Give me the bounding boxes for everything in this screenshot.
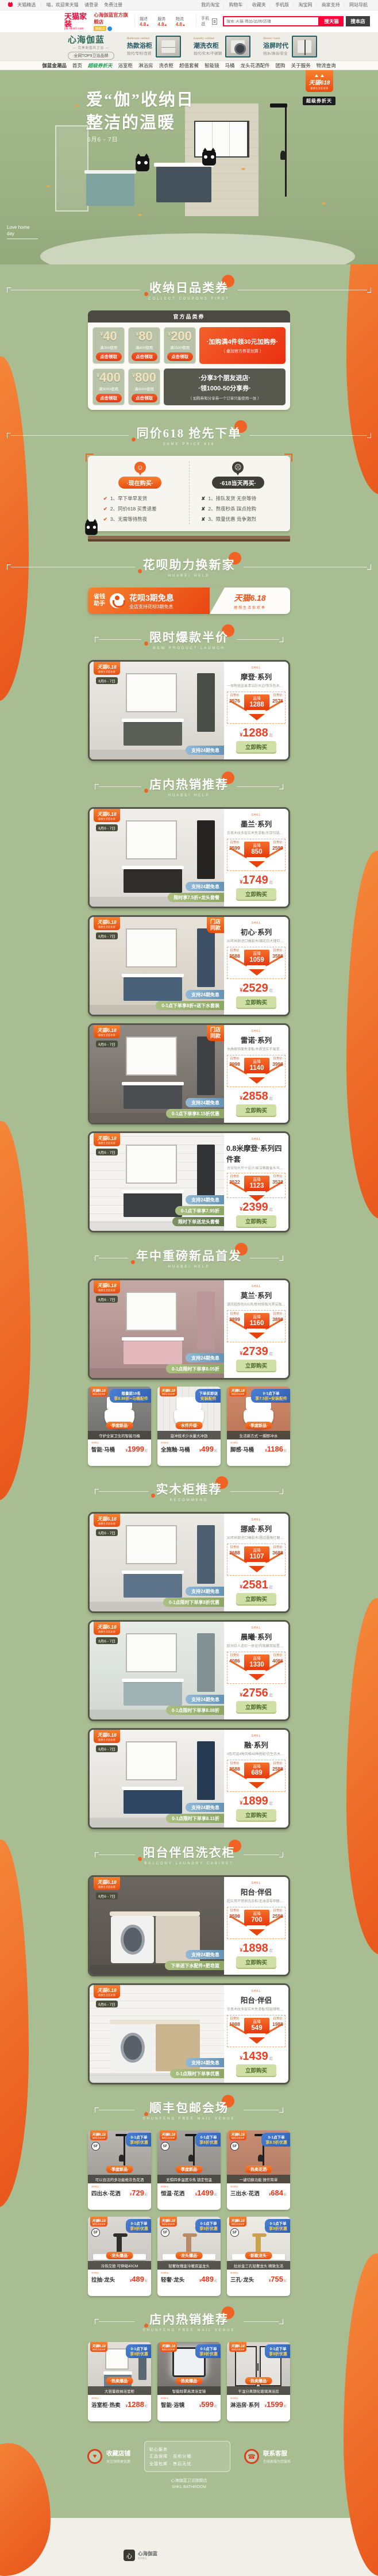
- image-badges: 支持24期免息0-1点下单享8.15折优惠: [166, 1098, 224, 1118]
- brand-mark: SHKL: [251, 1285, 261, 1288]
- product-image: 天猫6.18理想生活狂欢季 6月6 - 7日 支持24期免息0-1点限时下单享8…: [90, 1280, 224, 1378]
- promo-badge: 0-1点限时下单享优惠: [170, 2069, 224, 2078]
- promo-badge: 0-1点限时下单享8.08折: [166, 1706, 224, 1715]
- nav-item[interactable]: 智能镜: [205, 62, 219, 69]
- check-icon: ✔: [103, 506, 107, 512]
- product-image: 天猫6.18理想生活狂欢季 6月6 - 7日 门店同款 支持24期免息0-1点下…: [90, 1025, 224, 1123]
- product-desc: 仿真木纹多层实木免漆板/东亚铰链大容量拖层: [227, 830, 286, 835]
- discount-graphic: 日常价4086 直降1330 日常价4086: [227, 1652, 286, 1684]
- small-product-card[interactable]: 天猫6.18理想生活狂欢季 0-1点下单享7.5折+安装配件 ·季度新品· 生活…: [227, 1387, 290, 1466]
- product-tag: ·热卖爆品·: [245, 2377, 272, 2385]
- nav-item[interactable]: 超值套餐: [179, 62, 199, 69]
- section-header-huabei: 花呗助力换新家huabei help: [0, 554, 378, 579]
- product-image: 天猫6.18理想生活狂欢季 6月6 - 7日 支持24期免息0-1点限时下单享8…: [90, 1622, 224, 1719]
- login-link[interactable]: 请登录: [84, 2, 98, 7]
- coupon-80: ¥80 满600使用 点击领取: [128, 327, 160, 364]
- coupon-400: ¥400 满3000使用 点击领取: [92, 368, 125, 405]
- nav-item-home[interactable]: 首页: [72, 62, 82, 69]
- image-badges: 支持24期免息0-1点限时下单享优惠: [170, 2058, 224, 2078]
- product-name: 淋浴房·系列: [230, 2401, 260, 2409]
- product-price: ¥1288起: [240, 727, 273, 739]
- promo-618-badge: 天猫6.18理想生活狂欢季 6月6 - 7日: [94, 1133, 120, 1157]
- product-desc: 超实用不锈钢洗衣柜/无油漆零甲醛更健康: [227, 1898, 286, 1903]
- product-image: 天猫6.18理想生活狂欢季 0-1点下单享9折优惠 ·热卖爆品· 大容量收纳浴室…: [88, 2342, 151, 2395]
- coupon-panel: ¥40 满300使用 点击领取 ¥80 满600使用 点击领取 ¥200 满15…: [88, 323, 290, 410]
- store-banner: 心海伽蓝 — 完美新国风卫浴 — ·全网TOP9卫浴品牌· Bathroom c…: [0, 32, 378, 61]
- section-subtitle: same price 618: [137, 443, 242, 446]
- section-subtitle: shunfeng free mail venue: [142, 2329, 235, 2332]
- smiley-icon: ☺: [134, 462, 146, 473]
- claim-coupon-button[interactable]: 点击领取: [167, 352, 193, 361]
- buy-now-button[interactable]: 立即购买: [236, 1701, 276, 1713]
- wooden-shelf: [88, 536, 290, 542]
- product-tag: ·水件升级·: [176, 1422, 203, 1429]
- claim-coupon-button[interactable]: 点击领取: [132, 352, 157, 361]
- coupon-800: ¥800 满6000使用 点击领取: [128, 368, 160, 405]
- section-title: 实木柜推荐: [156, 1480, 222, 1498]
- promo-badge: 0-1点限时下单享8折优惠: [163, 1598, 224, 1607]
- category-promo-cabinet[interactable]: Bathroom cabinet热款浴柜现代/专利/百搭: [127, 36, 181, 57]
- promo-badge: 下单送下水配件+肥皂篮: [165, 1961, 224, 1970]
- hero-title-line2: 整洁的温暖: [86, 109, 175, 133]
- product-price: ¥1999起: [126, 1445, 148, 1453]
- product-image: 天猫6.18理想生活狂欢季 6月6 - 7日 支持24期免息限时享7.5折+龙头…: [90, 809, 224, 907]
- tmall-618-logo: 天猫6.18理想生活狂欢季: [210, 588, 290, 614]
- tmall-home-logo[interactable]: 天猫家装jia.tmall.com: [64, 13, 88, 30]
- store-nav: 伽蓝金潮品 首页 超级券折天 浴室柜 淋浴房 洗衣柜 超值套餐 智能镜 马桶 龙…: [0, 61, 378, 70]
- promo-618-badge: 天猫6.18理想生活狂欢季: [90, 2342, 107, 2352]
- product-price: ¥2739起: [240, 1346, 273, 1357]
- favorites-link[interactable]: 收藏夹: [252, 2, 266, 7]
- brand-mark: SHKL: [91, 2397, 148, 2400]
- nav-item[interactable]: 物流查询: [317, 62, 336, 69]
- product-name: 轻奢·龙头: [161, 2275, 184, 2283]
- product-price: ¥2858起: [240, 1091, 273, 1102]
- small-product-row: 天猫6.18理想生活狂欢季 SF 0-1点下单享9折优惠 ·龙头爆品· 冷热交替…: [88, 2217, 290, 2296]
- coupon-200: ¥200 满1500使用 点击领取: [164, 327, 196, 364]
- product-card[interactable]: 天猫6.18理想生活狂欢季 6月6 - 7日 支持24期免息下单送下水配件+肥皂…: [88, 1875, 290, 1976]
- discount-ribbon: 下单买即送安装配件: [195, 1389, 221, 1403]
- section-title: 店内热销推荐: [149, 2310, 229, 2328]
- product-info: SHKL 阳台·伴侣 仿真木纹多层实木免漆板/双层储物空间超省心 日常价1988…: [224, 1985, 288, 2083]
- product-name: 三孔·龙头: [230, 2275, 254, 2283]
- brand-mark: SHKL: [91, 2185, 148, 2188]
- nav-item-super-coupon[interactable]: 超级券折天: [88, 62, 113, 69]
- promo-618-badge: 天猫6.18理想生活狂欢季: [90, 2217, 107, 2226]
- buy-now-button[interactable]: 立即购买: [236, 741, 276, 753]
- section-title: 阳台伴侣洗衣柜: [143, 1844, 236, 1861]
- promo-618-badge: 天猫6.18理想生活狂欢季 6月6 - 7日: [94, 1025, 120, 1049]
- link-my-taobao[interactable]: 我的淘宝: [201, 2, 219, 7]
- product-desc-bar: 生活新方式 一脚即冲水: [227, 1431, 290, 1439]
- discount-graphic: 日常价3688 直降1107 日常价3688: [227, 1544, 286, 1576]
- product-card[interactable]: 天猫6.18理想生活狂欢季 6月6 - 7日 支持24期免息0-1点限时下单享8…: [88, 1620, 290, 1721]
- product-info: SHKL 莫兰·系列 潮流脏粉色INS风/新材质极光黑岩板台面 日常价3899 …: [224, 1280, 288, 1378]
- product-image: 天猫6.18理想生活狂欢季 6月6 - 7日 支持24期免息下单送下水配件+肥皂…: [90, 1877, 224, 1975]
- huabei-icon: [110, 593, 125, 608]
- category-promo-laundry[interactable]: Laundry cabinet潮洗衣柜现代/实木/不锈钢: [194, 36, 250, 57]
- small-product-card[interactable]: 天猫6.18理想生活狂欢季 SF 0-1点下单享8.5折优惠 ·热卖花洒· 一键…: [227, 2130, 290, 2210]
- installment-badge: 支持24期免息: [186, 1353, 224, 1362]
- promo-618-badge: 天猫6.18理想生活狂欢季 6月6 - 7日: [94, 662, 120, 685]
- small-product-card[interactable]: 天猫6.18理想生活狂欢季 0-1点下单享9折优惠 ·热卖爆品· 大容量收纳浴室…: [88, 2342, 151, 2421]
- buy-now-button[interactable]: 立即购买: [236, 1360, 276, 1371]
- discount-ribbon: 0-1点下单享7.5折+安装配件: [251, 1389, 290, 1403]
- taobao-link[interactable]: 淘宝网: [298, 2, 312, 7]
- product-price: ¥1899起: [240, 1795, 273, 1807]
- discount-graphic: 日常价3998 直降1140 日常价3998: [227, 1055, 286, 1087]
- buy-now-button[interactable]: 立即购买: [236, 2064, 276, 2076]
- product-card[interactable]: 天猫6.18理想生活狂欢季 6月6 - 7日 支持24期免息0-1点限时下单享8…: [88, 1728, 290, 1829]
- product-price: ¥489起: [130, 2275, 148, 2283]
- cart-link[interactable]: 购物车: [229, 2, 242, 7]
- promo-618-badge: 天猫6.18理想生活狂欢季 6月6 - 7日: [94, 1730, 120, 1753]
- product-series: 摩登·系列: [241, 671, 272, 682]
- nav-item[interactable]: 关于服务: [291, 62, 311, 69]
- product-name: 智能·马桶: [91, 1445, 115, 1453]
- promo-badge: 0-1点限时下单享8.05折: [166, 1364, 224, 1373]
- section-header: 限时爆款半价new product launch: [88, 627, 290, 652]
- product-info: SHKL 智能·浴镜 ¥599起: [157, 2395, 221, 2409]
- store-footer-logo: 心 心海伽蓝SHKL: [124, 2550, 157, 2561]
- hero-banner[interactable]: 爱“伽”收纳日 整洁的温暖 6月6 - 7日 Love homeday 天猫61…: [0, 70, 378, 264]
- product-tag: ·龙头爆品·: [176, 2252, 203, 2259]
- product-image: 天猫6.18理想生活狂欢季 SF 0-1点下单享9折优惠 ·龙头爆品· 冷热交替…: [88, 2217, 151, 2270]
- section-title: 顺丰包邮会场: [149, 2099, 229, 2116]
- product-image: 天猫6.18理想生活狂欢季 6月6 - 7日 支持24期免息0-1点限时下单享8…: [90, 1730, 224, 1828]
- product-series: 晨曦·系列: [241, 1631, 272, 1642]
- store-logo[interactable]: 心海伽蓝 — 完美新国风卫浴 — ·全网TOP9卫浴品牌·: [68, 33, 114, 60]
- arrow-down-icon: [249, 1674, 265, 1680]
- discount-graphic: 日常价3588 直降1059 日常价3588: [227, 947, 286, 979]
- section-header: 年中重磅新品首发huabei help: [88, 1245, 290, 1270]
- product-desc-bar: 守护全家卫生的智能马桶: [88, 1431, 151, 1439]
- product-series: 阳台·伴侣: [241, 1994, 272, 2005]
- installment-badge: 支持24期免息: [186, 2058, 224, 2067]
- promo-618-badge: 天猫6.18理想生活狂欢季: [160, 2130, 177, 2140]
- image-badges: 支持24期免息0-1点下单享7.95折限时下单送龙头套餐: [172, 1195, 224, 1226]
- buy-now-button[interactable]: 立即购买: [236, 1104, 276, 1116]
- hero-hand-shower: [280, 151, 286, 160]
- promo-618-badge: 天猫6.18理想生活狂欢季 6月6 - 7日: [94, 917, 120, 940]
- product-info: SHKL 初心·系列 30年树龄进口橡胶木/烟花白大理石台面 日常价3588 直…: [224, 917, 288, 1015]
- small-product-row: 天猫6.18理想生活狂欢季 限量前10名享8.88折+马桶配件 ·季度新品· 守…: [88, 1387, 290, 1466]
- nav-item[interactable]: 伽蓝金潮品: [42, 62, 67, 69]
- product-desc-bar: 无惧四季温度冷热 锁定恒温: [157, 2175, 221, 2183]
- image-badges: 支持24期免息0-1点限时下单享8折优惠: [163, 1587, 224, 1607]
- image-badges: 支持24期免息限时享7.5折+龙头套餐: [168, 882, 224, 902]
- buy-now-button[interactable]: 立即购买: [236, 1809, 276, 1821]
- discount-graphic: 日常价1988 直降549 日常价1988: [227, 2015, 286, 2047]
- sf-express-icon: SF: [230, 2228, 239, 2237]
- product-desc: 仿真木纹多层实木免漆板/双层储物空间超省心: [227, 2006, 286, 2011]
- section-header: 阳台伴侣洗衣柜balcony laundry cabinet: [88, 1842, 290, 1867]
- brand-mark: SHKL: [161, 2271, 217, 2274]
- product-card[interactable]: 天猫6.18理想生活狂欢季 6月6 - 7日 支持24期免息 SHKL 摩登·系…: [88, 660, 290, 761]
- small-product-card[interactable]: 天猫6.18理想生活狂欢季 SF 0-1点下单享9折优惠 ·龙头爆品· 轻奢玫瑰…: [157, 2217, 221, 2296]
- promo-618-badge: 天猫6.18理想生活狂欢季 6月6 - 7日: [94, 1622, 120, 1645]
- product-price: ¥684起: [269, 2189, 287, 2197]
- product-info: SHKL 四出水·花洒 ¥729起: [88, 2183, 151, 2197]
- register-link[interactable]: 免费注册: [104, 2, 122, 7]
- search-tmall-button[interactable]: 搜天猫: [319, 16, 344, 26]
- discount-ribbon: 0-1点下单享9折优惠: [265, 2219, 290, 2233]
- arrow-down-icon: [249, 1929, 265, 1936]
- product-card[interactable]: 天猫6.18理想生活狂欢季 6月6 - 7日 门店同款 支持24期免息0-1点下…: [88, 1023, 290, 1124]
- product-desc-bar: 轻奢玫瑰金冷暖双温龙头: [157, 2261, 221, 2270]
- image-badges: 支持24期免息0-1点限时下单享8.05折: [166, 1353, 224, 1373]
- brand-mark: SHKL: [230, 2185, 287, 2188]
- product-name: 全施釉·马桶: [161, 1445, 190, 1453]
- discount-graphic: 日常价2598 直降700 日常价2598: [227, 1907, 286, 1939]
- promo-618-badge: 天猫6.18理想生活狂欢季: [160, 2217, 177, 2226]
- section-title: 收纳日品类券: [149, 279, 229, 296]
- claim-coupon-button[interactable]: 点击领取: [96, 352, 122, 361]
- product-price: ¥2756起: [240, 1687, 273, 1699]
- section-header: 实木柜推荐recommend: [88, 1479, 290, 1504]
- product-tag: ·季度新品·: [245, 1422, 272, 1429]
- installment-badge: 支持24期免息: [186, 1098, 224, 1107]
- image-badges: 支持24期免息下单送下水配件+肥皂篮: [165, 1950, 224, 1970]
- small-product-card[interactable]: 天猫6.18理想生活狂欢季 下单买即送安装配件 ·水件升级· 漩冲技术少水量大冲…: [157, 1387, 221, 1466]
- product-info: SHKL 轻奢·龙头 ¥489起: [157, 2270, 221, 2283]
- brand-mark: SHKL: [251, 1518, 261, 1522]
- sf-express-icon: SF: [91, 2228, 100, 2237]
- sf-express-icon: SF: [161, 2142, 169, 2151]
- wangwang-icon[interactable]: [107, 26, 112, 31]
- hero-shower-head: [270, 103, 287, 108]
- product-info: SHKL 浴室柜·热卖 ¥1288起: [88, 2395, 151, 2409]
- installment-badge: 支持24期免息: [186, 990, 224, 999]
- cross-icon: ✘: [201, 496, 205, 502]
- buy-now-button[interactable]: 立即购买: [236, 1215, 276, 1227]
- product-name: 拉抽·龙头: [91, 2275, 115, 2283]
- add-on-coupon-promo[interactable]: ·加购满4件领30元加购券· （ 叠加官方券更划算 ）: [199, 327, 286, 364]
- arrow-down-icon: [249, 1077, 265, 1084]
- promo-618-badge: 天猫6.18理想生活狂欢季: [229, 2217, 246, 2226]
- nav-item[interactable]: 浴室柜: [118, 62, 133, 69]
- small-product-card[interactable]: 天猫6.18理想生活狂欢季 SF 0-1点下单享8折优惠 ·季度新品· 无惧四季…: [157, 2130, 221, 2210]
- promo-618-badge: 天猫6.18理想生活狂欢季: [90, 1387, 107, 1396]
- product-info: SHKL 全施釉·马桶 ¥499起: [157, 1439, 221, 1453]
- small-product-card[interactable]: 天猫6.18理想生活狂欢季 限量前10名享8.88折+马桶配件 ·季度新品· 守…: [88, 1387, 151, 1466]
- mobile-visit[interactable]: 手机逛: [196, 16, 217, 27]
- product-card[interactable]: 天猫6.18理想生活狂欢季 6月6 - 7日 门店同款 支持24期免息0-1点下…: [88, 915, 290, 1016]
- sf-express-icon: SF: [91, 2142, 100, 2151]
- product-info: SHKL 三孔·龙头 ¥755起: [227, 2270, 290, 2283]
- product-price: ¥2399起: [240, 1201, 273, 1213]
- buy-now-pill: ·现在购买·: [118, 477, 161, 489]
- promo-618-badge: 天猫6.18理想生活狂欢季 6月6 - 7日: [94, 1877, 120, 1901]
- product-desc-bar: 拉丝金三孔轻奢龙头 精致生活: [227, 2261, 290, 2270]
- product-tag: ·季度新品·: [176, 2166, 203, 2173]
- promo-618-badge: 天猫6.18理想生活狂欢季: [90, 2130, 107, 2140]
- brand-mark: SHKL: [251, 922, 261, 925]
- claim-coupon-button[interactable]: 点击领取: [132, 394, 157, 402]
- product-tag: ·热卖花洒·: [245, 2166, 272, 2173]
- small-product-card[interactable]: 天猫6.18理想生活狂欢季 0-1点下单享9折优惠 ·热卖爆品· 干湿分离钢化玻…: [227, 2342, 290, 2421]
- product-series: 雷诺·系列: [241, 1034, 272, 1045]
- product-info: SHKL 摩登·系列 一体陶瓷盆易清洁防水边/铁灰色木纹高档次搭配 日常价257…: [224, 662, 288, 759]
- promo-618-badge: 天猫6.18理想生活狂欢季: [160, 2342, 177, 2352]
- seller-support-link[interactable]: 商家支持: [322, 2, 340, 7]
- product-info: SHKL 智能·马桶 ¥1999起: [88, 1439, 151, 1453]
- section-title: 花呗助力换新家: [143, 556, 236, 573]
- section-header-coupons: 收纳日品类券collect coupons first: [0, 277, 378, 302]
- discount-ribbon: 0-1点下单享9折优惠: [126, 2344, 151, 2358]
- brand-mark: SHKL: [161, 1441, 217, 1444]
- nav-item[interactable]: 马桶: [225, 62, 235, 69]
- discount-ribbon: 限量前10名享8.88折+马桶配件: [110, 1389, 151, 1403]
- product-info: SHKL 三出水·花洒 ¥684起: [227, 2183, 290, 2197]
- brand-mark: SHKL: [251, 1626, 261, 1630]
- product-name: 四出水·花洒: [91, 2189, 121, 2197]
- share-coupon-promo[interactable]: ·分享3个朋友进店· ·领1000-50分享券· （ 加购券和分享券一个订单只能…: [164, 368, 286, 405]
- brand-mark: SHKL: [251, 813, 261, 817]
- nav-item[interactable]: 洗衣柜: [159, 62, 173, 69]
- product-image: 天猫6.18理想生活狂欢季 6月6 - 7日 支持24期免息: [90, 662, 224, 759]
- promo-badge: 限时享7.5折+龙头套餐: [168, 893, 224, 902]
- hero-shower-pole: [285, 105, 287, 197]
- nav-item[interactable]: 团购: [276, 62, 286, 69]
- installment-badge: 支持24期免息: [186, 1195, 224, 1204]
- arrow-down-icon: [249, 969, 265, 976]
- brand-mark: SHKL: [230, 1441, 287, 1444]
- product-image: 天猫6.18理想生活狂欢季 限量前10名享8.88折+马桶配件 ·季度新品· 守…: [88, 1387, 151, 1439]
- arrow-down-icon: [249, 714, 265, 720]
- section-header: 顺丰包邮会场shunfeng free mail venue: [88, 2097, 290, 2122]
- category-promo-shower[interactable]: Shower room浴屏时代挡水/淋浴/安全: [263, 36, 317, 57]
- search-box: [223, 16, 319, 26]
- product-desc-bar: 冷热交替 可伸缩40CM: [88, 2261, 151, 2270]
- mobile-link[interactable]: 手机版: [275, 2, 289, 7]
- store-same-style-badge: 门店同款: [207, 1025, 224, 1041]
- search-store-button[interactable]: 搜本店: [346, 16, 370, 26]
- product-card[interactable]: 天猫6.18理想生活狂欢季 6月6 - 7日 支持24期免息限时享7.5折+龙头…: [88, 807, 290, 908]
- product-price: ¥1599起: [265, 2401, 287, 2408]
- installment-badge: 支持24期免息: [186, 1950, 224, 1959]
- phone-icon: ☎: [244, 2449, 259, 2464]
- buy-now-button[interactable]: 立即购买: [236, 888, 276, 900]
- section-header-618: 同价618 抢先下单same price 618: [0, 423, 378, 448]
- product-image: 天猫6.18理想生活狂欢季 6月6 - 7日 支持24期免息0-1点限时下单享8…: [90, 1514, 224, 1611]
- product-card[interactable]: 天猫6.18理想生活狂欢季 6月6 - 7日 支持24期免息0-1点下单享7.9…: [88, 1131, 290, 1233]
- product-price: ¥499起: [199, 1445, 217, 1453]
- washer-image: [225, 36, 250, 57]
- contact-service-item[interactable]: ☎ 联系客服在线客服为您服务: [244, 2449, 291, 2464]
- product-desc: 30年树龄进口橡胶木/圆边圆角打磨设计: [227, 1535, 286, 1540]
- tmall-cat-mascot: [202, 151, 216, 166]
- buy-now-button[interactable]: 立即购买: [236, 996, 276, 1008]
- product-desc: 30年树龄进口橡胶木/烟花白大理石台面: [227, 938, 286, 943]
- product-info: SHKL 0.8米摩登·系列四件套 台盆加大尺寸设计/易洁釉面省水马桶/大顶喷花…: [224, 1133, 288, 1231]
- product-series: 0.8米摩登·系列四件套: [226, 1142, 286, 1164]
- product-desc-bar: 一键切换功能 操作简单: [227, 2175, 290, 2183]
- small-product-card[interactable]: 天猫6.18理想生活狂欢季 SF 0-1点下单享9折优惠 ·新款龙头· 拉丝金三…: [227, 2217, 290, 2296]
- search-input[interactable]: [224, 20, 318, 24]
- promo-618-badge: 天猫6.18理想生活狂欢季: [160, 1387, 177, 1396]
- small-product-row: 天猫6.18理想生活狂欢季 0-1点下单享9折优惠 ·热卖爆品· 大容量收纳浴室…: [88, 2342, 290, 2421]
- product-price: ¥1288起: [126, 2401, 148, 2408]
- section-subtitle: collect coupons first: [148, 297, 230, 301]
- hero-title-line1: 爱“伽”收纳日: [86, 86, 194, 110]
- discount-graphic: 日常价2576 直降1288 日常价2576: [227, 692, 286, 724]
- product-card[interactable]: 天猫6.18理想生活狂欢季 6月6 - 7日 支持24期免息0-1点限时下单享优…: [88, 1983, 290, 2084]
- product-price: ¥2529起: [240, 982, 273, 994]
- nav-item[interactable]: 龙头花洒配件: [241, 62, 270, 69]
- cross-icon: ✘: [201, 516, 205, 523]
- product-card[interactable]: 天猫6.18理想生活狂欢季 6月6 - 7日 支持24期免息0-1点限时下单享8…: [88, 1279, 290, 1380]
- brand-mark: SHKL: [251, 1734, 261, 1738]
- product-name: 脚感·马桶: [230, 1445, 254, 1453]
- product-desc-bar: 智能除雾高清浴室镜: [157, 2386, 221, 2395]
- discount-ribbon: 0-1点下单享8.5折优惠: [261, 2133, 290, 2147]
- small-product-card[interactable]: 天猫6.18理想生活狂欢季 SF 0-1点下单享9折优惠 ·龙头爆品· 冷热交替…: [88, 2217, 151, 2296]
- favorite-store-item[interactable]: ♥ 收藏店铺关注领券更优惠: [87, 2449, 130, 2464]
- hero-vanity-dark: [156, 167, 211, 202]
- discount-ribbon: 0-1点下单享9折优惠: [265, 2344, 290, 2358]
- section-title: 年中重磅新品首发: [136, 1247, 242, 1264]
- buy-later-pill: ·618当天再买·: [212, 477, 264, 489]
- qr-icon: [212, 18, 217, 25]
- store-name[interactable]: 心海伽蓝官方旗舰店: [94, 11, 129, 25]
- product-price: ¥1499起: [195, 2189, 217, 2197]
- product-info: SHKL 晨曦·系列 欧洲白人造石一体盆/内隐藏双层置物/外观专利 日常价408…: [224, 1622, 288, 1719]
- section-subtitle: new product launch: [149, 647, 229, 650]
- sitemap-link[interactable]: 网站导航: [349, 2, 368, 7]
- sf-express-icon: SF: [230, 2142, 239, 2151]
- small-product-card[interactable]: 天猫6.18理想生活狂欢季 0-1点下单享9折优惠 ·热卖爆品· 智能除雾高清浴…: [157, 2342, 221, 2421]
- product-image: 天猫6.18理想生活狂欢季 0-1点下单享7.5折+安装配件 ·季度新品· 生活…: [227, 1387, 290, 1439]
- product-image: 天猫6.18理想生活狂欢季 SF 0-1点下单享9折优惠 ·新款龙头· 拉丝金三…: [227, 2217, 290, 2270]
- product-desc: 4色可选4种风格48种搭配/仿生态木纹免漆实木板: [227, 1751, 286, 1756]
- product-info: SHKL 雷诺·系列 水曲柳饰面免漆板/木质坚实不易变形寿命长 日常价3998 …: [224, 1025, 288, 1123]
- promo-618-badge: 天猫6.18理想生活狂欢季: [229, 1387, 246, 1396]
- nav-item[interactable]: 淋浴房: [138, 62, 153, 69]
- product-desc: 潮流脏粉色INS风/新材质极光黑岩板台面: [227, 1302, 286, 1307]
- huabei-banner[interactable]: 省钱助手 花呗3期免息全店支持花呗3期免息 天猫6.18理想生活狂欢季: [88, 588, 290, 614]
- product-desc: 欧洲白人造石一体盆/内隐藏双层置物/外观专利: [227, 1643, 286, 1648]
- copyright: 心海伽蓝卫浴旗舰店SHKL BATHROOM: [0, 2478, 378, 2505]
- link-tmall-featured[interactable]: 天猫精选: [17, 2, 36, 7]
- product-series: 莫兰·系列: [241, 1289, 272, 1300]
- product-price: ¥1186起: [265, 1445, 287, 1453]
- product-info: SHKL 拉抽·龙头 ¥489起: [88, 2270, 151, 2283]
- product-price: ¥729起: [130, 2189, 148, 2197]
- product-info: SHKL 脚感·马桶 ¥1186起: [227, 1439, 290, 1453]
- buy-now-button[interactable]: 立即购买: [236, 1956, 276, 1968]
- brand-mark: SHKL: [230, 2397, 287, 2400]
- promo-badge: 限时下单送龙头套餐: [172, 1217, 224, 1226]
- product-name: 三出水·花洒: [230, 2189, 260, 2197]
- super-coupon-badge: 超级券折天: [303, 97, 335, 105]
- product-tag: ·热卖爆品·: [176, 2377, 203, 2385]
- claim-coupon-button[interactable]: 点击领取: [96, 394, 122, 402]
- product-desc-bar: 可以自洁的多功能枪灰色花洒: [88, 2175, 151, 2183]
- promo-badge: 0-1点下单享8折+送下水套装: [156, 1001, 224, 1010]
- discount-graphic: 日常价2588 直降689 日常价2588: [227, 1760, 286, 1792]
- check-icon: ✔: [103, 496, 107, 502]
- product-card[interactable]: 天猫6.18理想生活狂欢季 6月6 - 7日 支持24期免息0-1点限时下单享8…: [88, 1512, 290, 1613]
- small-product-card[interactable]: 天猫6.18理想生活狂欢季 SF 0-1点下单享9折优惠 ·季度新品· 可以自洁…: [88, 2130, 151, 2210]
- promo-618-badge: 天猫6.18理想生活狂欢季: [229, 2130, 246, 2140]
- cabinet-image: [156, 36, 181, 57]
- brand-mark: SHKL: [91, 1441, 148, 1444]
- buy-now-button[interactable]: 立即购买: [236, 1593, 276, 1604]
- product-desc: 台盆加大尺寸设计/易洁釉面省水马桶/大顶喷花洒: [227, 1165, 286, 1169]
- product-price: ¥599起: [199, 2401, 217, 2408]
- product-image: 天猫6.18理想生活狂欢季 SF 0-1点下单享9折优惠 ·龙头爆品· 轻奢玫瑰…: [157, 2217, 221, 2270]
